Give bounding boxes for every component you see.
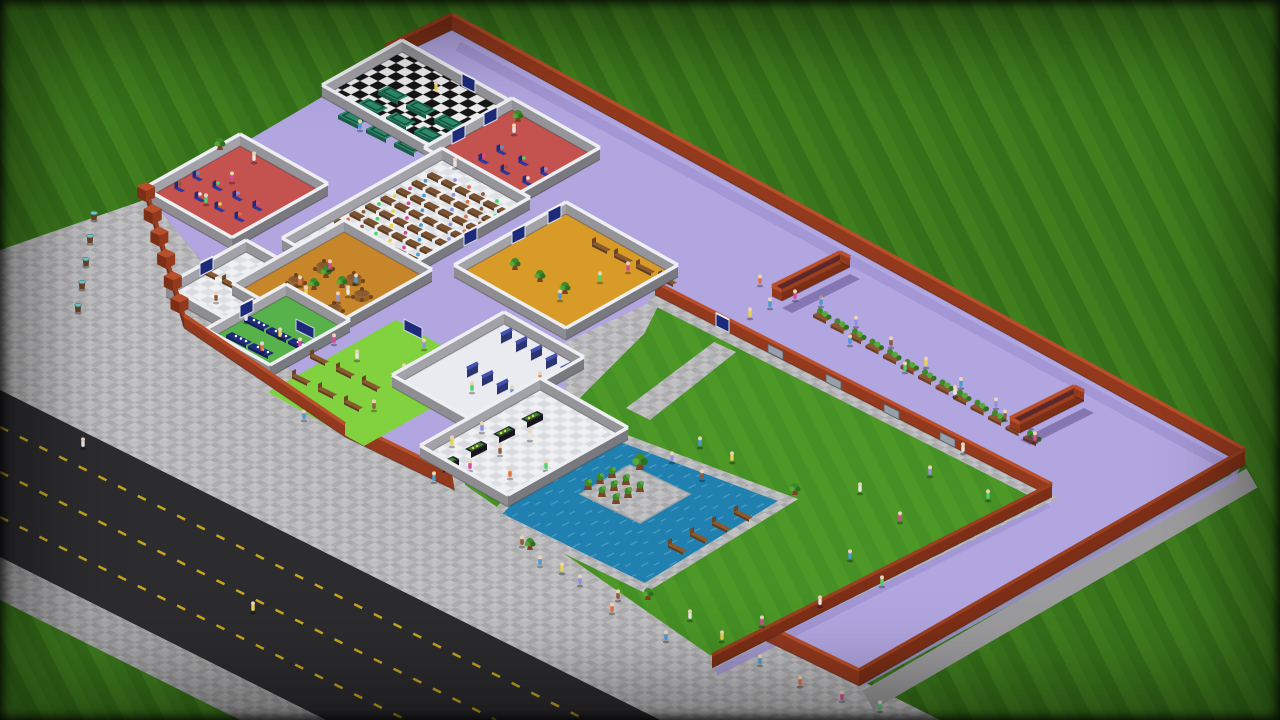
game-viewport[interactable]: [0, 0, 1280, 720]
scene-canvas[interactable]: [0, 0, 1280, 720]
